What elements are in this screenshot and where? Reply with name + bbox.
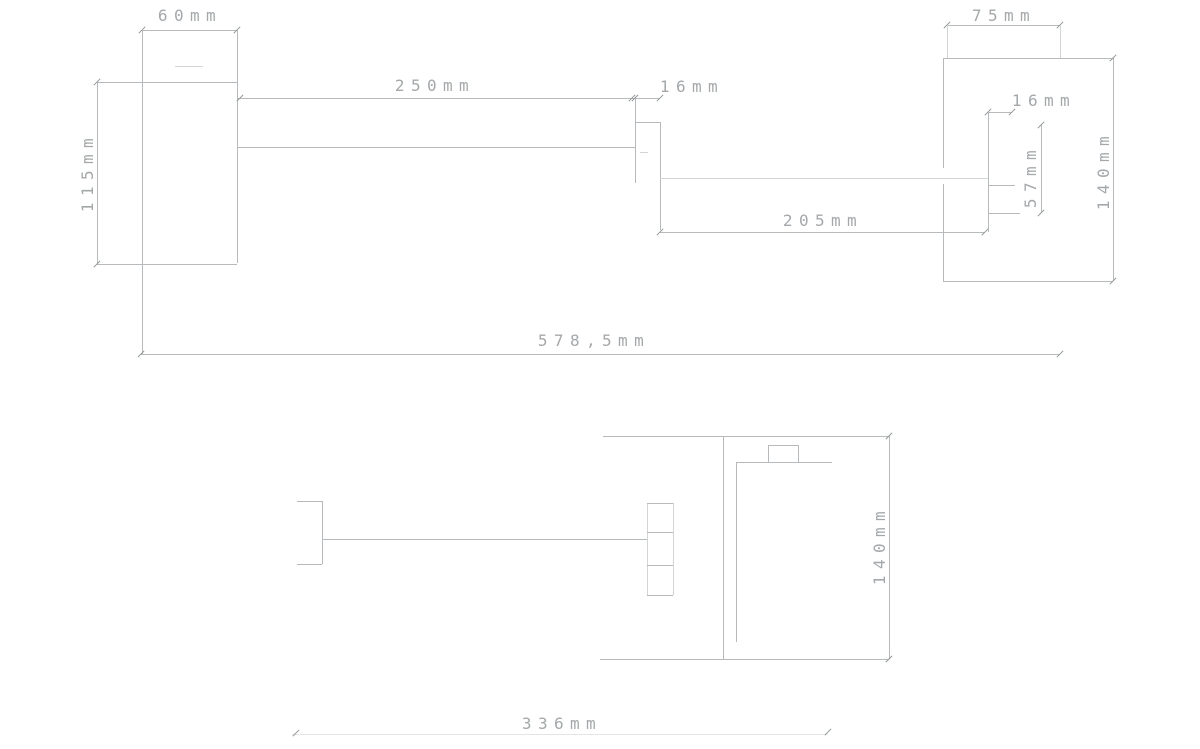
dim-tick	[1109, 277, 1116, 284]
plan-valve-body-top	[736, 462, 832, 463]
outlet-left-edge	[635, 98, 636, 183]
outlet-right-edge	[660, 122, 661, 230]
dim-line-outlet-width	[635, 98, 660, 99]
dim-label-outlet-to-valve: 205mm	[783, 213, 863, 229]
plan-plate-top	[297, 501, 322, 502]
outlet-shoulder	[635, 122, 660, 123]
dim-label-total-width: 578,5mm	[538, 333, 650, 349]
spindle-front-edge	[988, 112, 989, 232]
dim-line-side-plate-width	[947, 25, 1060, 26]
plan-wall-top-line	[603, 436, 889, 437]
dim-line-side-plate-height	[1113, 58, 1114, 281]
dim-line-total-width	[141, 354, 1060, 355]
dim-label-spindle-width: 16mm	[1012, 93, 1076, 109]
dim-line-spindle-length	[1041, 125, 1042, 213]
spindle-detail-upper	[988, 185, 1015, 186]
plan-handle-right	[798, 445, 799, 462]
side-plate-left-edge-upper	[943, 58, 944, 168]
plan-outlet-edge	[647, 532, 673, 533]
dim-label-plan-span: 336mm	[522, 716, 602, 732]
dim-tick	[1056, 350, 1063, 357]
dim-label-plate-width: 60mm	[158, 8, 222, 24]
dim-line-outlet-to-valve	[660, 232, 985, 233]
dim-label-spindle-length: 57mm	[1023, 144, 1039, 208]
extension-line	[947, 25, 948, 58]
plan-outlet-left	[647, 503, 648, 595]
dim-label-side-plate-height: 140mm	[1096, 130, 1112, 210]
side-plate-left-edge-lower	[943, 184, 944, 281]
plan-arm-line	[322, 539, 647, 540]
plan-plate-bottom	[297, 564, 322, 565]
spindle-detail-lower	[988, 213, 1020, 214]
side-plate-top-edge	[943, 58, 1113, 59]
dim-tick	[292, 729, 299, 736]
plate-detail-line	[175, 66, 203, 67]
plan-valve-body-edge	[736, 462, 737, 642]
dim-line-plan-span	[292, 734, 828, 735]
dim-line-plan-depth	[889, 436, 890, 659]
dim-label-side-plate-width: 75mm	[972, 8, 1036, 24]
dim-label-plan-depth: 140mm	[872, 505, 888, 585]
plan-handle-left	[768, 445, 769, 462]
dim-line-plate-width	[142, 30, 237, 31]
dim-line-spindle-width	[988, 112, 1012, 113]
arm-bottom-edge	[237, 147, 635, 148]
dim-label-outlet-width: 16mm	[660, 79, 724, 95]
arm-top-edge	[237, 98, 635, 99]
plan-outlet-right	[673, 503, 674, 595]
plate-bottom-edge	[97, 264, 237, 265]
plan-outlet-edge	[647, 595, 673, 596]
dim-tick	[885, 655, 892, 662]
plan-handle-top	[768, 445, 798, 446]
extension-line	[1060, 25, 1061, 58]
plan-outlet-edge	[647, 503, 673, 504]
plan-wall-bottom-line	[600, 659, 888, 660]
dim-label-plate-height: 115mm	[80, 132, 96, 212]
dim-label-arm-length: 250mm	[395, 78, 475, 94]
side-plate-bottom-edge	[943, 281, 1113, 282]
technical-drawing-canvas: 60mm 115mm 250mm 16mm 205mm	[0, 0, 1200, 749]
plan-plate-face	[322, 501, 323, 564]
dim-tick	[824, 728, 831, 735]
plan-wall-face	[723, 436, 724, 659]
dim-line-plate-height	[97, 82, 98, 264]
dim-tick	[1037, 209, 1044, 216]
outlet-detail	[640, 152, 648, 153]
plate-top-edge	[97, 82, 237, 83]
plan-outlet-edge	[647, 565, 673, 566]
extension-line-left	[142, 30, 143, 354]
projection-line	[660, 178, 988, 179]
